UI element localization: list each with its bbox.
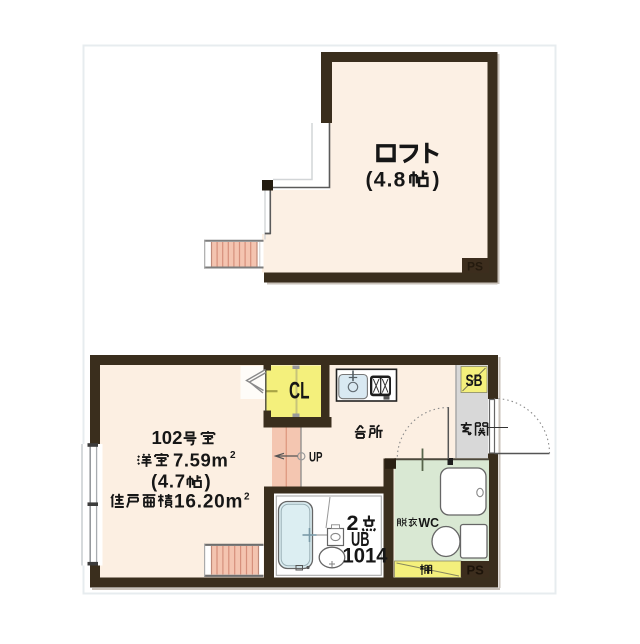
svg-text:WC: WC (419, 515, 440, 530)
svg-text:SB: SB (466, 371, 483, 390)
svg-text:UP: UP (309, 449, 323, 465)
svg-text:): ) (205, 471, 211, 492)
svg-text:(4.7: (4.7 (151, 471, 186, 492)
svg-text:): ) (433, 169, 440, 192)
svg-text:2: 2 (244, 492, 250, 503)
svg-text:(4.8: (4.8 (366, 169, 407, 192)
svg-text:PS: PS (467, 260, 483, 274)
svg-text:2: 2 (230, 450, 236, 461)
svg-text:102: 102 (152, 427, 183, 448)
svg-text:16.20m: 16.20m (174, 492, 243, 513)
svg-text:CL: CL (289, 378, 310, 405)
svg-text:PS: PS (467, 563, 485, 578)
svg-text:7.59m: 7.59m (173, 450, 228, 471)
svg-text:1014: 1014 (343, 545, 388, 568)
